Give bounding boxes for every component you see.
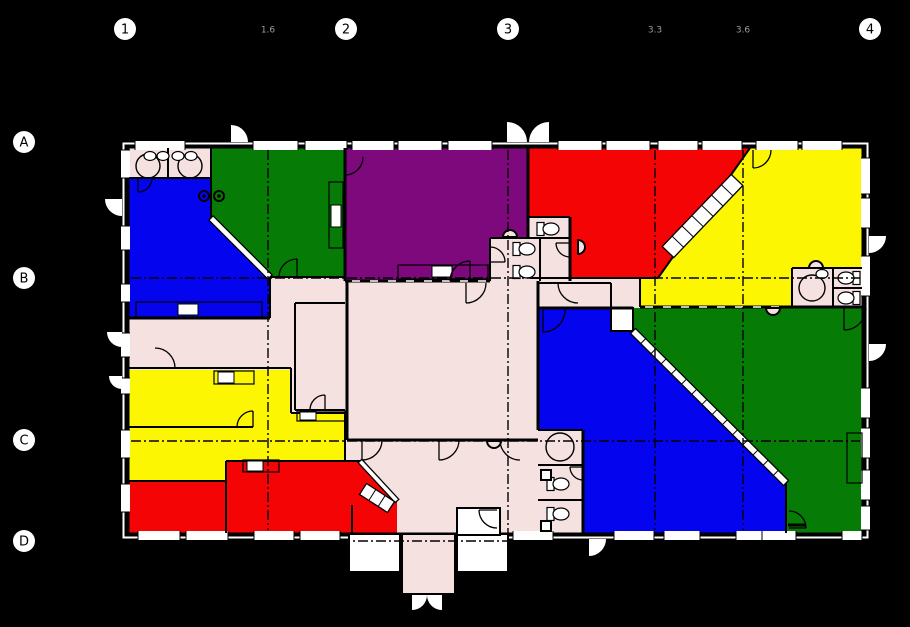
window xyxy=(448,141,492,150)
drinking-fountain xyxy=(766,308,780,315)
exterior-door-swing xyxy=(105,199,122,216)
grid-bubble-label-3: 3 xyxy=(504,23,512,38)
window xyxy=(702,141,742,150)
exterior-door-swing xyxy=(427,595,442,610)
entry-vestibule xyxy=(402,534,455,594)
drinking-fountain xyxy=(578,240,585,254)
column-ring-center xyxy=(202,194,206,198)
window xyxy=(513,531,553,540)
window xyxy=(558,141,602,150)
window xyxy=(861,506,870,530)
toilet xyxy=(537,223,559,236)
drinking-fountain xyxy=(487,441,501,448)
grid-minor-label-1.6: 1.6 xyxy=(261,26,276,36)
janitor-nook xyxy=(611,308,633,331)
window xyxy=(121,333,130,357)
exterior-door-swing xyxy=(507,122,527,142)
grid-bubble-label-4: 4 xyxy=(866,23,874,38)
grid-bubble-label-C: C xyxy=(19,434,28,449)
casework-appliance xyxy=(218,372,234,383)
casework-appliance xyxy=(300,412,316,420)
drinking-fountain xyxy=(503,230,517,237)
window xyxy=(135,141,185,150)
window xyxy=(842,531,862,540)
casework-appliance xyxy=(331,205,341,227)
toilet xyxy=(547,508,569,521)
exterior-door-swing xyxy=(107,332,122,347)
window xyxy=(300,531,340,540)
sink xyxy=(185,152,197,161)
grid-minor-label-3.6: 3.6 xyxy=(736,26,751,36)
exterior-door-swing xyxy=(529,122,549,142)
grid-minor-label-3.3: 3.3 xyxy=(648,26,662,36)
alcove-left xyxy=(349,534,400,572)
casework-appliance xyxy=(432,266,452,277)
window xyxy=(736,531,764,540)
window xyxy=(606,141,650,150)
window xyxy=(253,141,298,150)
window xyxy=(305,141,347,150)
window xyxy=(664,531,700,540)
column-ring-center xyxy=(217,194,221,198)
sink xyxy=(816,270,828,279)
grid-bubble-label-D: D xyxy=(19,535,29,550)
sink xyxy=(172,152,184,161)
exterior-door-swing xyxy=(589,539,606,556)
grid-bubble-label-2: 2 xyxy=(342,23,350,38)
window xyxy=(861,256,870,296)
window xyxy=(352,141,394,150)
window xyxy=(861,388,870,418)
window xyxy=(762,531,796,540)
window xyxy=(121,430,130,458)
toilet xyxy=(513,243,535,256)
sink xyxy=(144,152,156,161)
toilet-bowl xyxy=(519,243,535,255)
grid-bubble-label-B: B xyxy=(20,272,29,287)
drawing-area: 11.6233.33.64ABCD xyxy=(0,0,910,627)
window xyxy=(614,531,654,540)
window xyxy=(254,531,294,540)
alcove-right xyxy=(457,534,508,572)
window xyxy=(121,226,130,250)
floor-sink xyxy=(541,470,551,480)
toilet-bowl xyxy=(838,292,854,304)
toilet xyxy=(838,292,860,305)
toilet-bowl xyxy=(519,266,535,278)
grid-bubble-label-1: 1 xyxy=(121,23,129,38)
casework-appliance xyxy=(178,304,198,315)
window xyxy=(658,141,698,150)
exterior-door-swing xyxy=(869,344,886,361)
sink xyxy=(157,152,169,161)
floor-plan-canvas: 11.6233.33.64ABCD xyxy=(0,0,910,627)
window xyxy=(121,378,130,394)
exterior-door-swing xyxy=(231,125,248,142)
window xyxy=(861,158,870,194)
exterior-door-swing xyxy=(109,376,122,389)
toilet-bowl xyxy=(553,508,569,520)
window xyxy=(121,484,130,512)
exterior-door-swing xyxy=(412,595,427,610)
window xyxy=(121,284,130,302)
toilet-bowl xyxy=(543,223,559,235)
casework-appliance xyxy=(247,461,263,471)
window xyxy=(802,141,842,150)
window xyxy=(861,198,870,228)
drinking-fountain xyxy=(809,261,823,268)
toilet xyxy=(513,266,535,279)
window xyxy=(138,531,180,540)
window xyxy=(756,141,798,150)
toilet-bowl xyxy=(553,478,569,490)
exterior-door-swing xyxy=(869,236,886,253)
grid-bubble-label-A: A xyxy=(20,136,29,151)
window xyxy=(121,150,130,178)
window xyxy=(186,531,228,540)
floor-sink xyxy=(541,521,551,531)
window xyxy=(398,141,442,150)
